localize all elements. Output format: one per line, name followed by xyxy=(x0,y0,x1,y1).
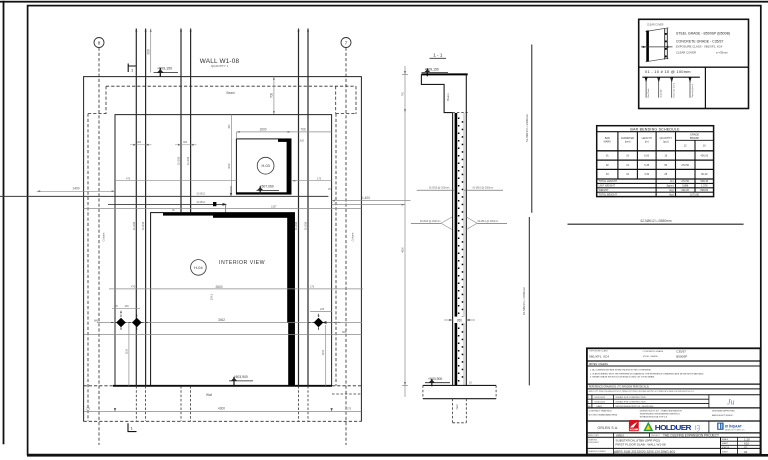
svg-text:B500SP: B500SP xyxy=(690,137,700,140)
svg-text:475: 475 xyxy=(131,285,136,288)
svg-text:01-5Ø#16 L=4600mm: 01-5Ø#16 L=4600mm xyxy=(522,286,526,315)
svg-text:IX İNŞAAT: IX İNŞAAT xyxy=(725,425,743,429)
svg-text:92,40: 92,40 xyxy=(701,173,708,176)
svg-text:tȜ: tȜ xyxy=(695,425,701,432)
svg-text:+509,150: +509,150 xyxy=(157,67,172,71)
svg-text:DESIGN SUB 57 B.T - TEAM DESIG: DESIGN SUB 57 B.T - TEAM DESIGNATION: xyxy=(640,410,683,413)
svg-text:680: 680 xyxy=(342,331,347,334)
svg-text:1600: 1600 xyxy=(259,128,266,132)
svg-text:REFERENCE DRAWINGS: (TO RANDOM: REFERENCE DRAWINGS: (TO RANDOM PERIODICA… xyxy=(589,386,649,389)
svg-text:HOLDUER: HOLDUER xyxy=(655,425,692,432)
svg-text:SHEET: SHEET xyxy=(722,443,729,445)
svg-text:1150: 1150 xyxy=(322,349,325,355)
svg-text:AREX: AREX xyxy=(616,433,624,437)
svg-text:C35/37: C35/37 xyxy=(676,349,686,353)
svg-text:300: 300 xyxy=(125,305,130,308)
svg-text:[kg]: [kg] xyxy=(669,194,673,197)
svg-text:Wall: Wall xyxy=(206,393,212,397)
svg-text:1. ALL DIMENSIONS ARE IN MM: 1. ALL DIMENSIONS ARE IN MM UNLESS NOTED… xyxy=(590,368,652,371)
svg-text:1150: 1150 xyxy=(125,348,128,354)
svg-text:01-Ø16: 01-Ø16 xyxy=(187,156,190,165)
svg-text:TOTAL LENGTH: TOTAL LENGTH xyxy=(599,180,618,183)
svg-text:STEEL GRADE - B500SP (B500B): STEEL GRADE - B500SP (B500B) xyxy=(676,32,730,36)
svg-text:[m]: [m] xyxy=(645,140,649,143)
svg-text:REVISION/DESCRIPTION - REVISIO: REVISION/DESCRIPTION - REVISIONS xyxy=(616,406,654,408)
svg-text:BOLTING TASARLAMA GENŞ: BOLTING TASARLAMA GENŞ xyxy=(589,414,618,417)
svg-text:475: 475 xyxy=(126,177,131,180)
svg-text:200: 200 xyxy=(300,140,305,143)
svg-text:02-Ø12 @ 200mm: 02-Ø12 @ 200mm xyxy=(420,220,441,223)
svg-text:BAZ/GIS/GPC/DIGER: BAZ/GIS/GPC/DIGER xyxy=(712,414,733,417)
svg-text:INTERIOR VIEW: INTERIOR VIEW xyxy=(219,260,265,266)
svg-text:700: 700 xyxy=(300,128,306,132)
svg-text:680: 680 xyxy=(94,319,99,322)
svg-text:3000: 3000 xyxy=(228,163,231,169)
svg-text:436,00: 436,00 xyxy=(700,155,708,158)
svg-text:ISSUED FOR CONSTRUCTION: ISSUED FOR CONSTRUCTION xyxy=(616,401,647,403)
svg-text:175: 175 xyxy=(310,285,315,288)
svg-text:[pcs]: [pcs] xyxy=(663,140,669,143)
svg-text:EXPOSURE CLASS: EXPOSURE CLASS xyxy=(590,350,609,353)
svg-text:02-Ø12: 02-Ø12 xyxy=(197,193,206,196)
svg-text:+503,900: +503,900 xyxy=(428,377,442,381)
svg-text:225: 225 xyxy=(320,308,325,311)
svg-text:CONTRACT TEAM BUD:: CONTRACT TEAM BUD: xyxy=(589,410,613,413)
svg-text:319,5: 319,5 xyxy=(211,293,214,300)
svg-text:NOTES: UNLESS: NOTES: UNLESS xyxy=(589,363,609,366)
svg-text:01-Ø16 @ 200mm: 01-Ø16 @ 200mm xyxy=(429,187,450,190)
svg-text:01 - 10 # 10 @ 100mm: 01 - 10 # 10 @ 100mm xyxy=(645,69,691,74)
svg-text:DESIGNED APPROVED: DESIGNED APPROVED xyxy=(712,410,735,413)
svg-text:SANAYI VE TICARET A.S.: SANAYI VE TICARET A.S. xyxy=(725,428,746,431)
svg-text:CONCRETE GRADE - C35/37: CONCRETE GRADE - C35/37 xyxy=(676,40,724,44)
svg-text:Beam: Beam xyxy=(446,93,450,101)
svg-text:[kg]: [kg] xyxy=(669,189,673,192)
svg-text:Column: Column xyxy=(103,232,106,241)
svg-text:400: 400 xyxy=(228,124,231,129)
svg-text:2157: 2157 xyxy=(271,206,277,209)
svg-text:STRASSORSLEGA 7/GP D-8: STRASSORSLEGA 7/GP D-8 xyxy=(640,416,668,419)
svg-text:01-Ø16: 01-Ø16 xyxy=(142,221,145,230)
svg-text:+507,060: +507,060 xyxy=(260,185,274,189)
svg-text:UNIT WEIGHT: UNIT WEIGHT xyxy=(599,185,616,188)
svg-text:DRAWING NUMBER: DRAWING NUMBER xyxy=(588,450,606,453)
svg-text:7: 7 xyxy=(345,41,348,46)
svg-text:2. IF ANTICIPATED WITH THE R: 2. IF ANTICIPATED WITH THE REFERENCE DRA… xyxy=(590,372,704,375)
svg-text:FIRST FLOOR SLAB - WALL W1-08: FIRST FLOOR SLAB - WALL W1-08 xyxy=(616,443,666,447)
svg-text:02-Ø12: 02-Ø12 xyxy=(197,201,206,204)
svg-text:0,888: 0,888 xyxy=(682,185,689,188)
svg-text:04.05.2023: 04.05.2023 xyxy=(595,397,606,399)
svg-text:2600: 2600 xyxy=(215,285,222,289)
svg-text:700: 700 xyxy=(401,91,404,96)
svg-text:8: 8 xyxy=(98,41,101,46)
svg-text:SHEET: SHEET xyxy=(722,451,729,453)
svg-text:Ju: Ju xyxy=(727,398,735,407)
svg-text:62-5Ø#12 L=5850mm: 62-5Ø#12 L=5850mm xyxy=(640,219,671,223)
svg-text:5,45: 5,45 xyxy=(644,164,649,167)
svg-text:TOTAL WEIGHT: TOTAL WEIGHT xyxy=(599,194,618,197)
svg-text:EMPLOYER: EMPLOYER xyxy=(588,435,599,437)
svg-text:242,00: 242,00 xyxy=(681,189,689,192)
svg-text:WEIGHT: WEIGHT xyxy=(599,189,609,192)
svg-text:ABRS-SUB-20132020-3200-CIV-DWG: ABRS-SUB-20132020-3200-CIV-DWG-601 xyxy=(614,450,675,454)
svg-text:4300: 4300 xyxy=(218,406,225,410)
svg-text:a =35mm: a =35mm xyxy=(716,50,728,54)
svg-text:3,30: 3,30 xyxy=(644,173,649,176)
svg-text:272,50: 272,50 xyxy=(681,164,689,167)
svg-text:ORLEN S.A.: ORLEN S.A. xyxy=(598,426,619,430)
svg-text:BRD-CITY 3200-CIV-GEN-001 NO.5: BRD-CITY 3200-CIV-GEN-001 NO.5 2RBS-CNT … xyxy=(589,391,695,393)
svg-text:Column: Column xyxy=(352,232,355,241)
svg-text:828,80: 828,80 xyxy=(700,189,708,192)
svg-text:Beam: Beam xyxy=(227,91,236,95)
svg-text:CLEAR COVER: CLEAR COVER xyxy=(647,23,664,26)
svg-text:01-Ø16: 01-Ø16 xyxy=(295,221,298,230)
svg-text:[m]: [m] xyxy=(670,180,674,183)
svg-text:INDEPENDENT ENGINEERING METRIC: INDEPENDENT ENGINEERING METRICS xyxy=(640,414,681,416)
svg-text:Spacing (mm): Spacing (mm) xyxy=(692,84,694,98)
svg-text:Wall: Wall xyxy=(456,404,459,409)
svg-text:MARK: MARK xyxy=(604,140,612,143)
svg-text:300: 300 xyxy=(137,141,142,144)
svg-text:CONCRETE GRADE: CONCRETE GRADE xyxy=(643,350,664,353)
svg-text:Quantity: Quantity xyxy=(660,88,663,97)
svg-text:272,50: 272,50 xyxy=(681,180,689,183)
svg-text:Bar Mark: Bar Mark xyxy=(647,88,650,98)
svg-text:61-5Ø#16 L=2200mm: 61-5Ø#16 L=2200mm xyxy=(525,113,529,142)
svg-text:ORLEN: ORLEN xyxy=(630,429,635,431)
svg-text:PROJECT: PROJECT xyxy=(651,435,661,437)
svg-text:DATE: DATE xyxy=(597,405,603,408)
svg-text:02-Ø12 @ 200mm: 02-Ø12 @ 200mm xyxy=(478,220,499,223)
svg-text:H-03: H-03 xyxy=(261,164,269,168)
svg-text:528,40: 528,40 xyxy=(700,180,708,183)
svg-text:01-Ø16: 01-Ø16 xyxy=(133,221,136,230)
svg-text:Diameter (mm): Diameter (mm) xyxy=(673,83,676,98)
svg-text:275: 275 xyxy=(86,407,91,410)
svg-text:[mm]: [mm] xyxy=(625,140,631,143)
svg-text:3. REBAR USAGE SHORTCUTS/DET: 3. REBAR USAGE SHORTCUTS/DETAILS USED ON… xyxy=(590,375,655,378)
svg-text:XB1/XF1, XC4: XB1/XF1, XC4 xyxy=(589,355,609,359)
svg-text:1 - 1: 1 - 1 xyxy=(433,53,443,58)
svg-text:QUANTITY 1: QUANTITY 1 xyxy=(211,64,229,68)
svg-text:STEEL GRADE: STEEL GRADE xyxy=(643,355,659,358)
svg-text:BAR BENDING SCHEDULE: BAR BENDING SCHEDULE xyxy=(630,127,680,131)
svg-text:900: 900 xyxy=(146,49,150,55)
svg-text:04.06.2023: 04.06.2023 xyxy=(595,401,606,403)
svg-text:CLEAR COVER: CLEAR COVER xyxy=(676,50,696,54)
svg-text:1,400: 1,400 xyxy=(362,196,370,200)
svg-text:+503,900: +503,900 xyxy=(234,375,248,379)
svg-text:H-04: H-04 xyxy=(194,265,203,270)
svg-text:300: 300 xyxy=(183,141,188,144)
svg-text:01-Ø16: 01-Ø16 xyxy=(178,156,181,165)
svg-text:4650: 4650 xyxy=(401,247,404,253)
svg-text:260: 260 xyxy=(457,319,463,323)
svg-text:1,578: 1,578 xyxy=(701,185,708,188)
svg-text:EXPOSURE CLASS - XB1/XF1, XC4: EXPOSURE CLASS - XB1/XF1, XC4 xyxy=(676,45,723,49)
svg-text:[kg/m]: [kg/m] xyxy=(667,185,674,188)
svg-text:275: 275 xyxy=(347,407,352,410)
svg-text:STATEMENT: STATEMENT xyxy=(588,441,600,444)
svg-text:175: 175 xyxy=(317,177,322,180)
svg-text:6,00: 6,00 xyxy=(644,155,649,158)
svg-text:1070,80: 1070,80 xyxy=(690,194,700,197)
svg-text:01-Ø16 @ 200mm: 01-Ø16 @ 200mm xyxy=(473,187,494,190)
svg-text:700: 700 xyxy=(269,93,273,99)
svg-text:SCALE: SCALE xyxy=(722,438,729,441)
svg-text:ISSUED FOR CONSTRUCTION: ISSUED FOR CONSTRUCTION xyxy=(616,397,647,399)
svg-text:3462: 3462 xyxy=(218,318,225,322)
svg-text:01-Ø16: 01-Ø16 xyxy=(305,221,308,230)
svg-text:B500SP: B500SP xyxy=(676,355,687,359)
svg-text:01: 01 xyxy=(744,450,748,454)
svg-text:1400: 1400 xyxy=(72,186,79,190)
